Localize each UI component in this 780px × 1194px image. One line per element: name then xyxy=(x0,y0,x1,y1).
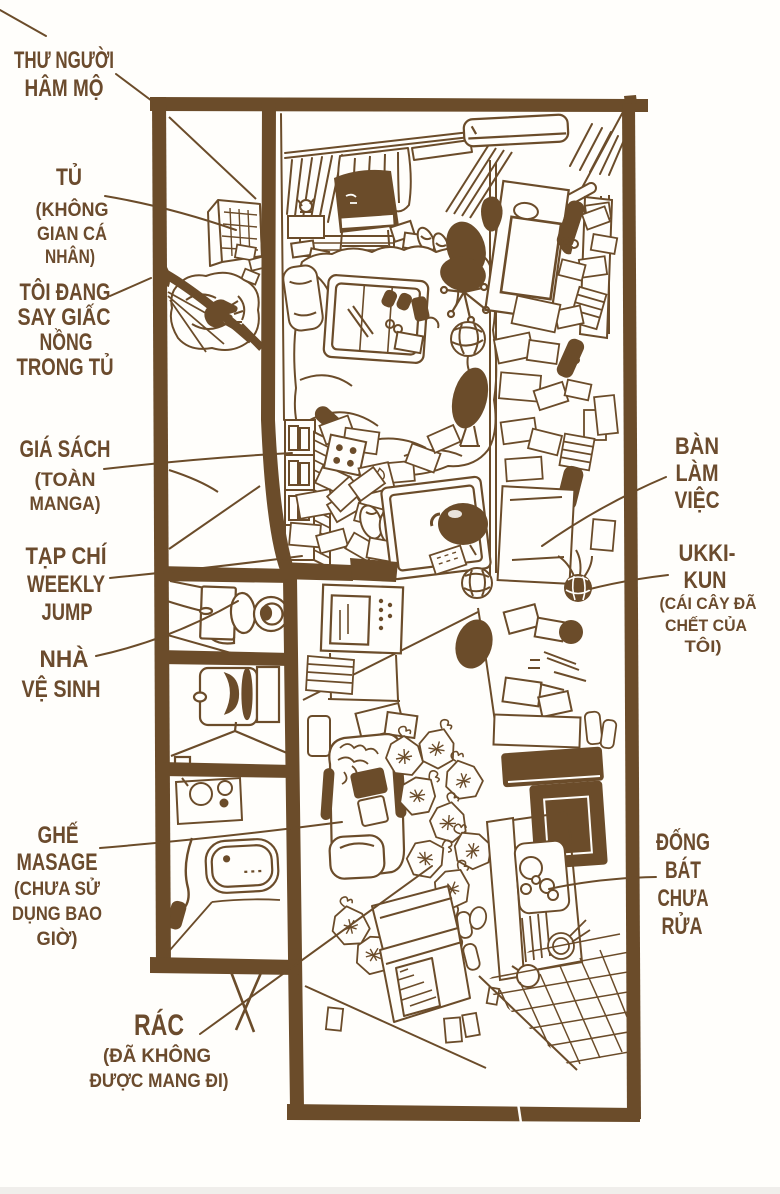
svg-text:DỤNG BAO: DỤNG BAO xyxy=(12,904,102,925)
svg-text:BÁT: BÁT xyxy=(665,856,701,884)
svg-text:TRONG TỦ: TRONG TỦ xyxy=(17,352,114,381)
svg-text:BÀN: BÀN xyxy=(675,432,719,460)
svg-text:KUN: KUN xyxy=(684,567,727,594)
svg-text:(ĐÃ KHÔNG: (ĐÃ KHÔNG xyxy=(103,1045,211,1067)
svg-text:WEEKLY: WEEKLY xyxy=(27,571,105,598)
svg-text:(CHƯA SỬ: (CHƯA SỬ xyxy=(14,878,100,900)
svg-text:THƯ NGƯỜI: THƯ NGƯỜI xyxy=(14,46,114,74)
svg-text:GHẾ: GHẾ xyxy=(38,821,79,849)
svg-text:CHẾT CỦA: CHẾT CỦA xyxy=(665,616,747,635)
svg-text:RÁC: RÁC xyxy=(134,1008,184,1042)
svg-text:(KHÔNG: (KHÔNG xyxy=(36,199,109,221)
svg-text:VỆ SINH: VỆ SINH xyxy=(22,675,101,703)
svg-text:(TOÀN: (TOÀN xyxy=(35,469,96,491)
svg-text:UKKI-: UKKI- xyxy=(679,540,736,567)
svg-text:(CÁI CÂY ĐÃ: (CÁI CÂY ĐÃ xyxy=(660,593,757,613)
svg-text:HÂM MỘ: HÂM MỘ xyxy=(25,74,104,102)
svg-text:TẠP CHÍ: TẠP CHÍ xyxy=(26,542,108,570)
svg-text:GIÁ SÁCH: GIÁ SÁCH xyxy=(20,435,111,463)
svg-text:NHÂN): NHÂN) xyxy=(45,246,95,268)
svg-text:VIỆC: VIỆC xyxy=(675,486,720,514)
svg-text:TÔI): TÔI) xyxy=(685,637,722,656)
svg-text:TỦ: TỦ xyxy=(56,162,82,191)
svg-text:JUMP: JUMP xyxy=(42,599,93,626)
svg-text:GIỜ): GIỜ) xyxy=(37,928,78,950)
svg-text:TÔI ĐANG: TÔI ĐANG xyxy=(20,278,111,306)
svg-text:RỬA: RỬA xyxy=(662,911,703,940)
svg-text:MANGA): MANGA) xyxy=(30,494,101,515)
svg-text:NHÀ: NHÀ xyxy=(40,645,89,673)
svg-text:ĐỐNG: ĐỐNG xyxy=(656,828,710,856)
svg-text:CHƯA: CHƯA xyxy=(658,885,709,912)
svg-text:ĐƯỢC MANG ĐI): ĐƯỢC MANG ĐI) xyxy=(90,1071,229,1092)
svg-text:SAY GIẤC: SAY GIẤC xyxy=(18,303,111,331)
svg-text:LÀM: LÀM xyxy=(676,459,719,487)
svg-text:MASAGE: MASAGE xyxy=(17,849,98,876)
svg-text:GIAN CÁ: GIAN CÁ xyxy=(37,223,107,245)
svg-text:NỒNG: NỒNG xyxy=(40,328,93,356)
